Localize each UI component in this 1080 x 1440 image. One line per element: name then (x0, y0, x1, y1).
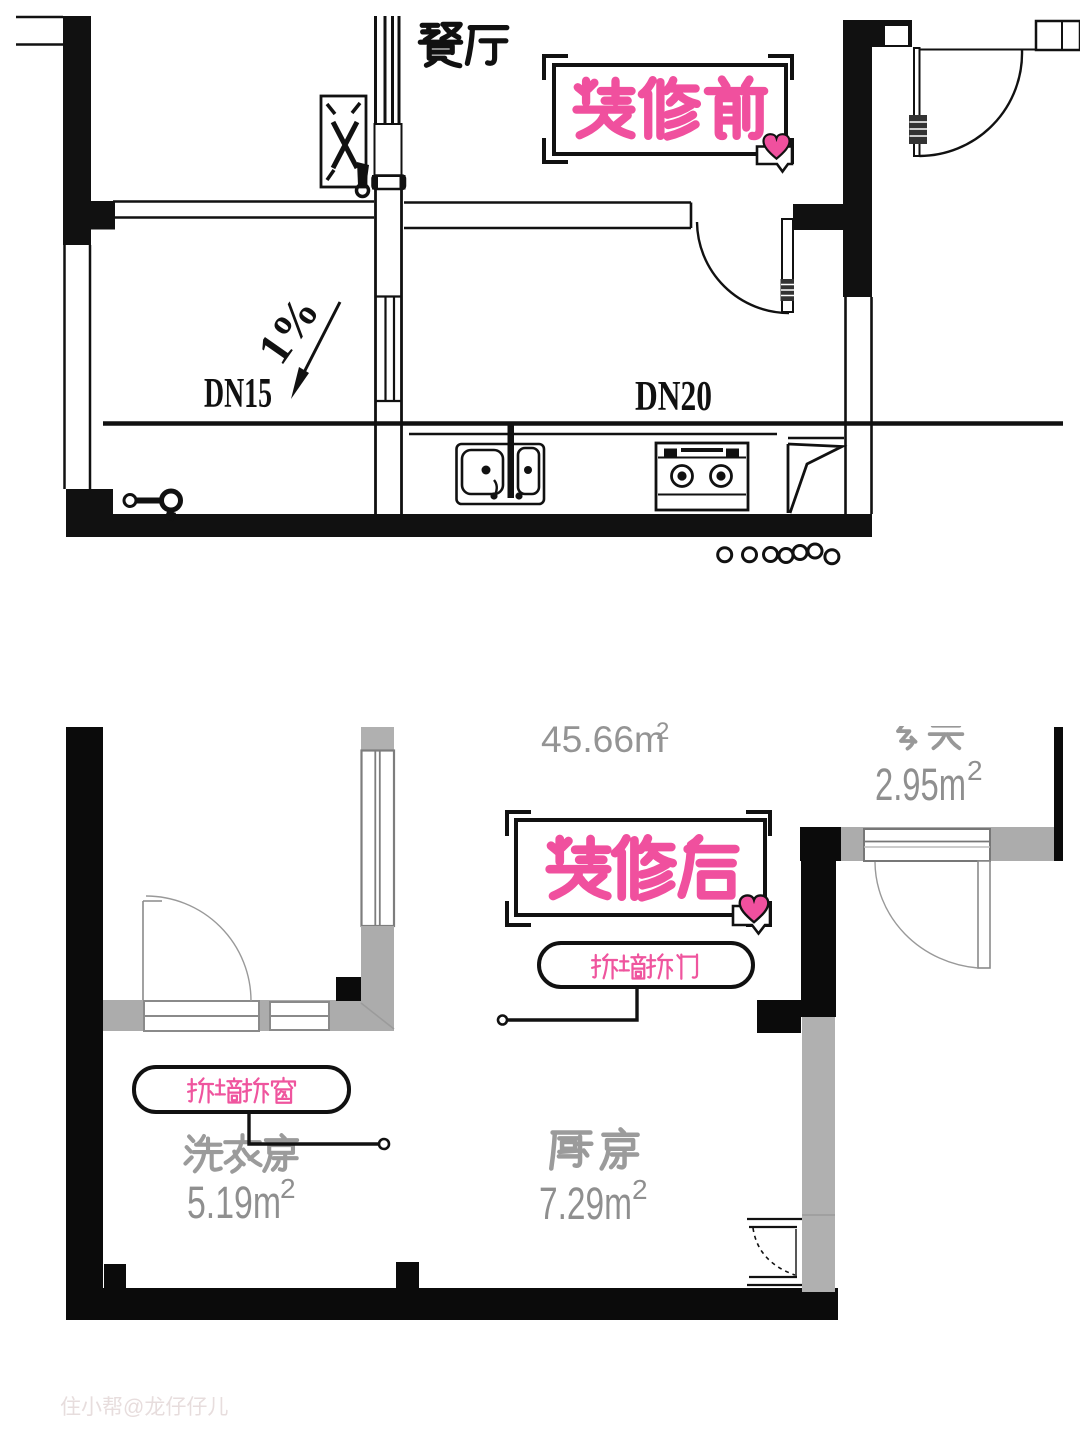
svg-text:2: 2 (656, 718, 669, 745)
svg-text:住小帮@龙仔仔儿: 住小帮@龙仔仔儿 (60, 1396, 228, 1419)
svg-text:2: 2 (967, 755, 983, 786)
svg-text:2: 2 (280, 1173, 296, 1204)
svg-text:45.66m: 45.66m (541, 719, 665, 760)
svg-text:DN20: DN20 (635, 374, 712, 420)
svg-text:1%: 1% (247, 287, 328, 373)
svg-text:5.19m: 5.19m (187, 1177, 281, 1228)
svg-text:2.95m: 2.95m (875, 759, 966, 810)
svg-text:2: 2 (632, 1174, 648, 1205)
svg-text:7.29m: 7.29m (539, 1178, 632, 1229)
svg-text:DN15: DN15 (204, 371, 272, 417)
